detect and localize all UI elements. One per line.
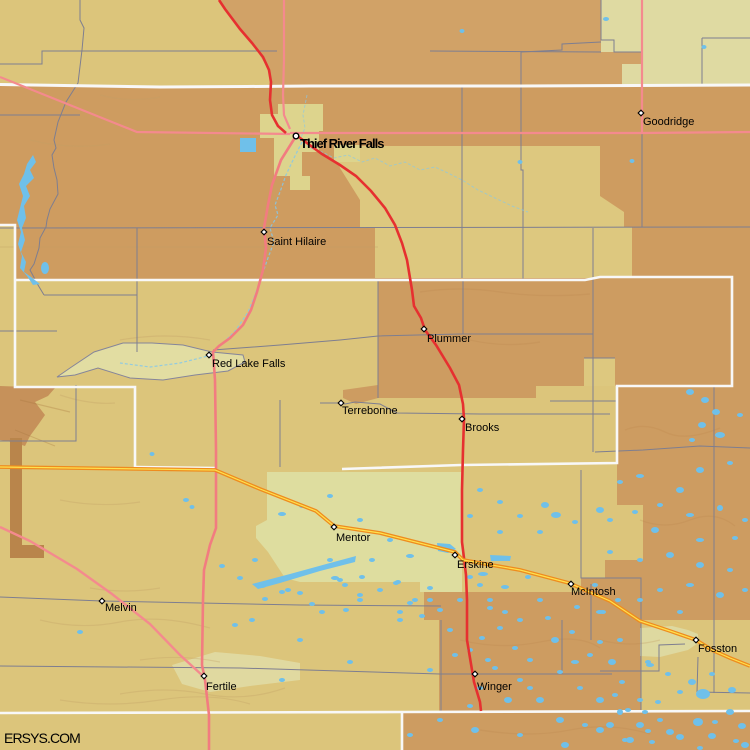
svg-text:Brooks: Brooks	[465, 422, 500, 434]
svg-text:Winger: Winger	[477, 681, 512, 693]
svg-text:Melvin: Melvin	[105, 602, 137, 614]
svg-text:Red Lake Falls: Red Lake Falls	[212, 358, 286, 370]
svg-text:Plummer: Plummer	[427, 333, 471, 345]
svg-text:Fosston: Fosston	[698, 643, 737, 655]
svg-text:Saint Hilaire: Saint Hilaire	[267, 236, 326, 248]
svg-text:Fertile: Fertile	[206, 681, 237, 693]
svg-text:Goodridge: Goodridge	[643, 116, 694, 128]
svg-text:ERSYS.COM: ERSYS.COM	[4, 730, 80, 746]
svg-text:Erskine: Erskine	[457, 559, 494, 571]
svg-text:McIntosh: McIntosh	[571, 586, 616, 598]
svg-text:Terrebonne: Terrebonne	[342, 405, 398, 417]
svg-text:Thief River Falls: Thief River Falls	[300, 136, 384, 151]
svg-text:Mentor: Mentor	[336, 532, 371, 544]
